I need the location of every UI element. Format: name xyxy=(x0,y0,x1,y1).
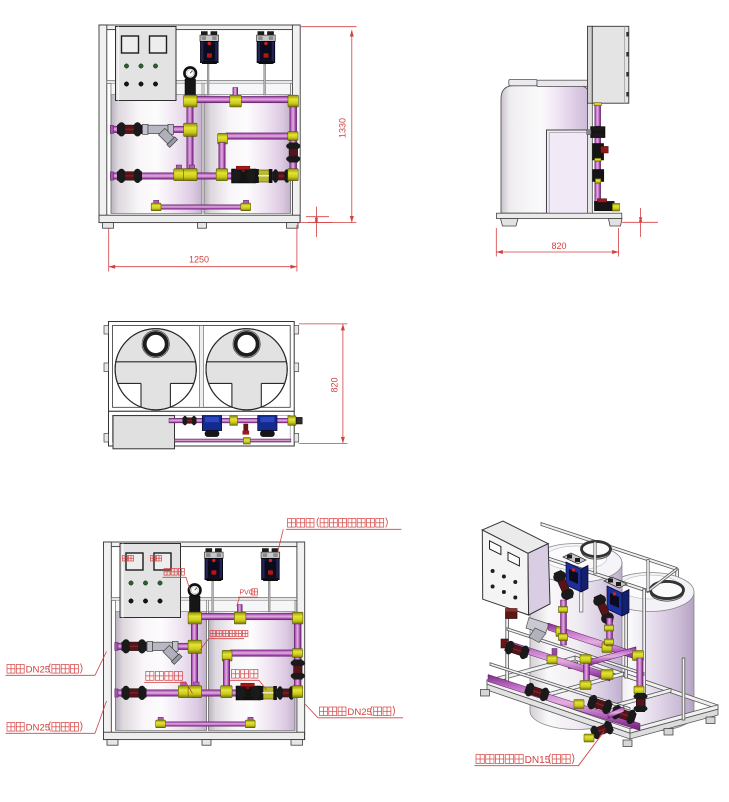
svg-text:1330: 1330 xyxy=(338,118,348,138)
svg-text:DN25: DN25 xyxy=(347,707,372,718)
svg-text:820: 820 xyxy=(330,377,340,392)
svg-text:DN25: DN25 xyxy=(26,722,51,733)
svg-text:1250: 1250 xyxy=(189,255,209,265)
svg-text:DN15: DN15 xyxy=(525,755,551,766)
svg-text:DN25: DN25 xyxy=(26,664,51,675)
svg-text:820: 820 xyxy=(551,241,566,251)
